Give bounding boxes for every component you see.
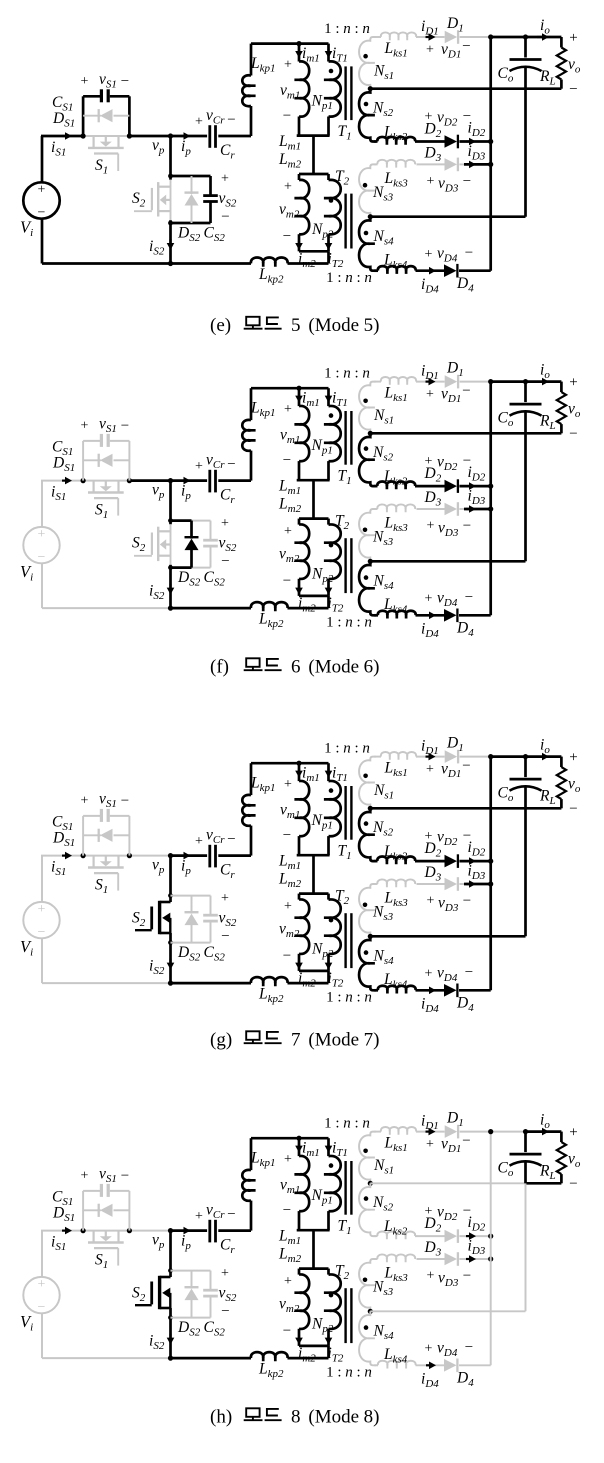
svg-text:+: +	[427, 1269, 435, 1284]
svg-text:−: −	[38, 550, 46, 565]
svg-text:+: +	[425, 454, 433, 469]
svg-text:+: +	[425, 592, 433, 607]
svg-text:+: +	[425, 829, 433, 844]
svg-text:+: +	[425, 967, 433, 982]
svg-text:(g): (g)	[210, 1030, 232, 1051]
svg-text:+: +	[284, 524, 292, 539]
svg-text:−: −	[283, 1323, 291, 1339]
svg-text:+: +	[284, 58, 292, 73]
svg-text:−: −	[462, 758, 470, 774]
svg-text:+: +	[221, 516, 229, 531]
svg-text:(f): (f)	[210, 657, 229, 678]
svg-text:−: −	[462, 1133, 470, 1149]
svg-text:−: −	[463, 893, 471, 909]
svg-text:(Mode: (Mode	[308, 1407, 359, 1428]
svg-text:−: −	[283, 453, 291, 469]
svg-text:−: −	[221, 209, 229, 225]
svg-text:−: −	[283, 573, 291, 589]
svg-text:+: +	[284, 1274, 292, 1289]
svg-text:(e): (e)	[210, 315, 231, 336]
svg-text:+: +	[38, 183, 46, 198]
svg-text:−: −	[569, 82, 577, 98]
svg-text:+: +	[221, 891, 229, 906]
svg-text:−: −	[121, 1168, 129, 1184]
svg-text:+: +	[221, 1266, 229, 1281]
svg-text:8): 8)	[364, 1407, 380, 1428]
svg-text:−: −	[465, 1340, 473, 1356]
svg-text:−: −	[462, 383, 470, 399]
svg-text:1 : n : n: 1 : n : n	[326, 1365, 372, 1381]
svg-text:−: −	[38, 1300, 46, 1315]
svg-text:+: +	[284, 402, 292, 417]
svg-text:+: +	[426, 43, 434, 58]
svg-text:8: 8	[291, 1407, 301, 1428]
svg-text:−: −	[283, 108, 291, 124]
svg-text:−: −	[465, 965, 473, 981]
svg-text:−: −	[283, 948, 291, 964]
svg-text:7: 7	[291, 1030, 301, 1051]
svg-text:−: −	[569, 1176, 577, 1192]
svg-text:−: −	[221, 554, 229, 570]
svg-text:+: +	[195, 115, 203, 130]
svg-text:−: −	[121, 793, 129, 809]
svg-text:−: −	[121, 418, 129, 434]
svg-text:+: +	[426, 762, 434, 777]
svg-text:6: 6	[291, 657, 301, 678]
svg-text:1 : n : n: 1 : n : n	[324, 366, 370, 382]
svg-text:−: −	[221, 1304, 229, 1320]
svg-text:−: −	[38, 206, 46, 221]
svg-text:1 : n : n: 1 : n : n	[324, 741, 370, 757]
svg-text:+: +	[284, 899, 292, 914]
svg-text:−: −	[227, 832, 235, 848]
svg-text:+: +	[426, 1137, 434, 1152]
svg-text:+: +	[425, 1342, 433, 1357]
svg-text:+: +	[195, 459, 203, 474]
svg-text:+: +	[38, 1277, 46, 1292]
svg-text:+: +	[569, 375, 577, 391]
svg-text:−: −	[283, 229, 291, 245]
svg-text:−: −	[465, 590, 473, 606]
svg-text:1 : n : n: 1 : n : n	[324, 1116, 370, 1132]
svg-text:−: −	[227, 112, 235, 128]
svg-text:−: −	[38, 925, 46, 940]
svg-text:+: +	[569, 1125, 577, 1141]
svg-text:+: +	[569, 750, 577, 766]
svg-text:−: −	[283, 1203, 291, 1219]
svg-text:+: +	[81, 794, 89, 809]
svg-text:+: +	[425, 247, 433, 262]
svg-text:+: +	[284, 1152, 292, 1167]
svg-text:−: −	[569, 426, 577, 442]
svg-text:1 : n : n: 1 : n : n	[326, 615, 372, 631]
svg-text:1 : n : n: 1 : n : n	[324, 21, 370, 37]
svg-text:+: +	[569, 30, 577, 46]
svg-text:1 : n : n: 1 : n : n	[326, 990, 372, 1006]
svg-text:+: +	[427, 519, 435, 534]
svg-text:5: 5	[291, 315, 301, 336]
svg-text:−: −	[465, 245, 473, 261]
svg-text:+: +	[221, 172, 229, 187]
svg-text:−: −	[221, 929, 229, 945]
svg-text:(Mode: (Mode	[308, 1030, 359, 1051]
svg-text:+: +	[81, 74, 89, 89]
svg-text:+: +	[38, 527, 46, 542]
svg-text:(Mode: (Mode	[308, 315, 359, 336]
svg-text:7): 7)	[364, 1030, 380, 1051]
svg-text:+: +	[427, 174, 435, 189]
svg-text:+: +	[195, 834, 203, 849]
svg-text:+: +	[38, 902, 46, 917]
svg-text:+: +	[425, 110, 433, 125]
svg-text:(h): (h)	[210, 1407, 232, 1428]
svg-text:+: +	[195, 1209, 203, 1224]
svg-text:−: −	[462, 39, 470, 55]
svg-text:+: +	[81, 1169, 89, 1184]
svg-text:−: −	[227, 1207, 235, 1223]
svg-text:+: +	[284, 777, 292, 792]
svg-text:6): 6)	[364, 657, 380, 678]
svg-text:−: −	[463, 174, 471, 190]
svg-text:+: +	[425, 1204, 433, 1219]
svg-text:+: +	[427, 894, 435, 909]
svg-text:−: −	[227, 457, 235, 473]
svg-text:−: −	[463, 518, 471, 534]
svg-text:(Mode: (Mode	[308, 657, 359, 678]
svg-text:−: −	[569, 801, 577, 817]
svg-text:+: +	[284, 180, 292, 195]
svg-text:5): 5)	[364, 315, 380, 336]
svg-text:+: +	[81, 419, 89, 434]
svg-text:−: −	[121, 73, 129, 89]
svg-text:−: −	[463, 1268, 471, 1284]
svg-text:1 : n : n: 1 : n : n	[326, 270, 372, 286]
svg-text:−: −	[283, 828, 291, 844]
svg-text:+: +	[426, 387, 434, 402]
